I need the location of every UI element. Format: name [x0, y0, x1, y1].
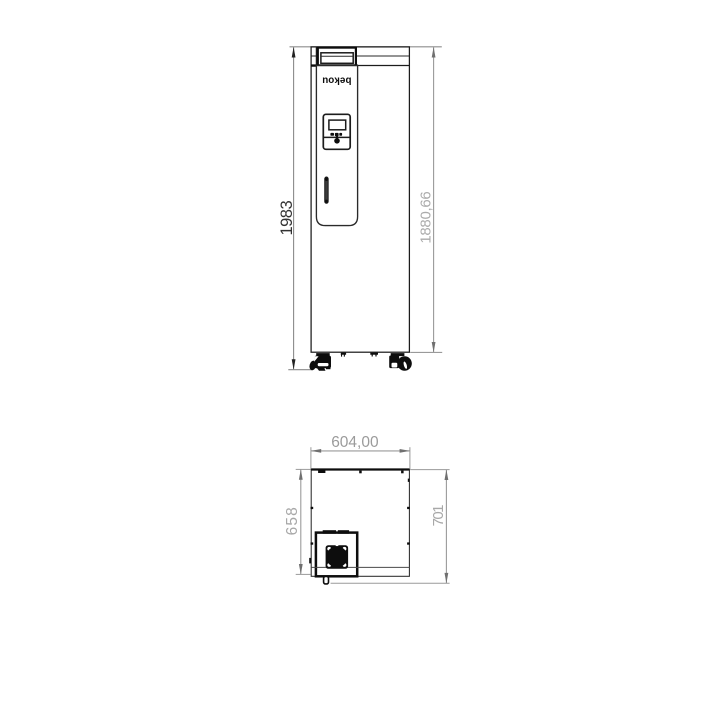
svg-text:bekou: bekou: [322, 74, 351, 85]
svg-text:1983: 1983: [278, 201, 296, 236]
svg-text:604,00: 604,00: [331, 434, 379, 451]
svg-text:658: 658: [284, 506, 301, 535]
svg-text:1880,66: 1880,66: [417, 192, 434, 244]
svg-text:701: 701: [430, 505, 447, 526]
